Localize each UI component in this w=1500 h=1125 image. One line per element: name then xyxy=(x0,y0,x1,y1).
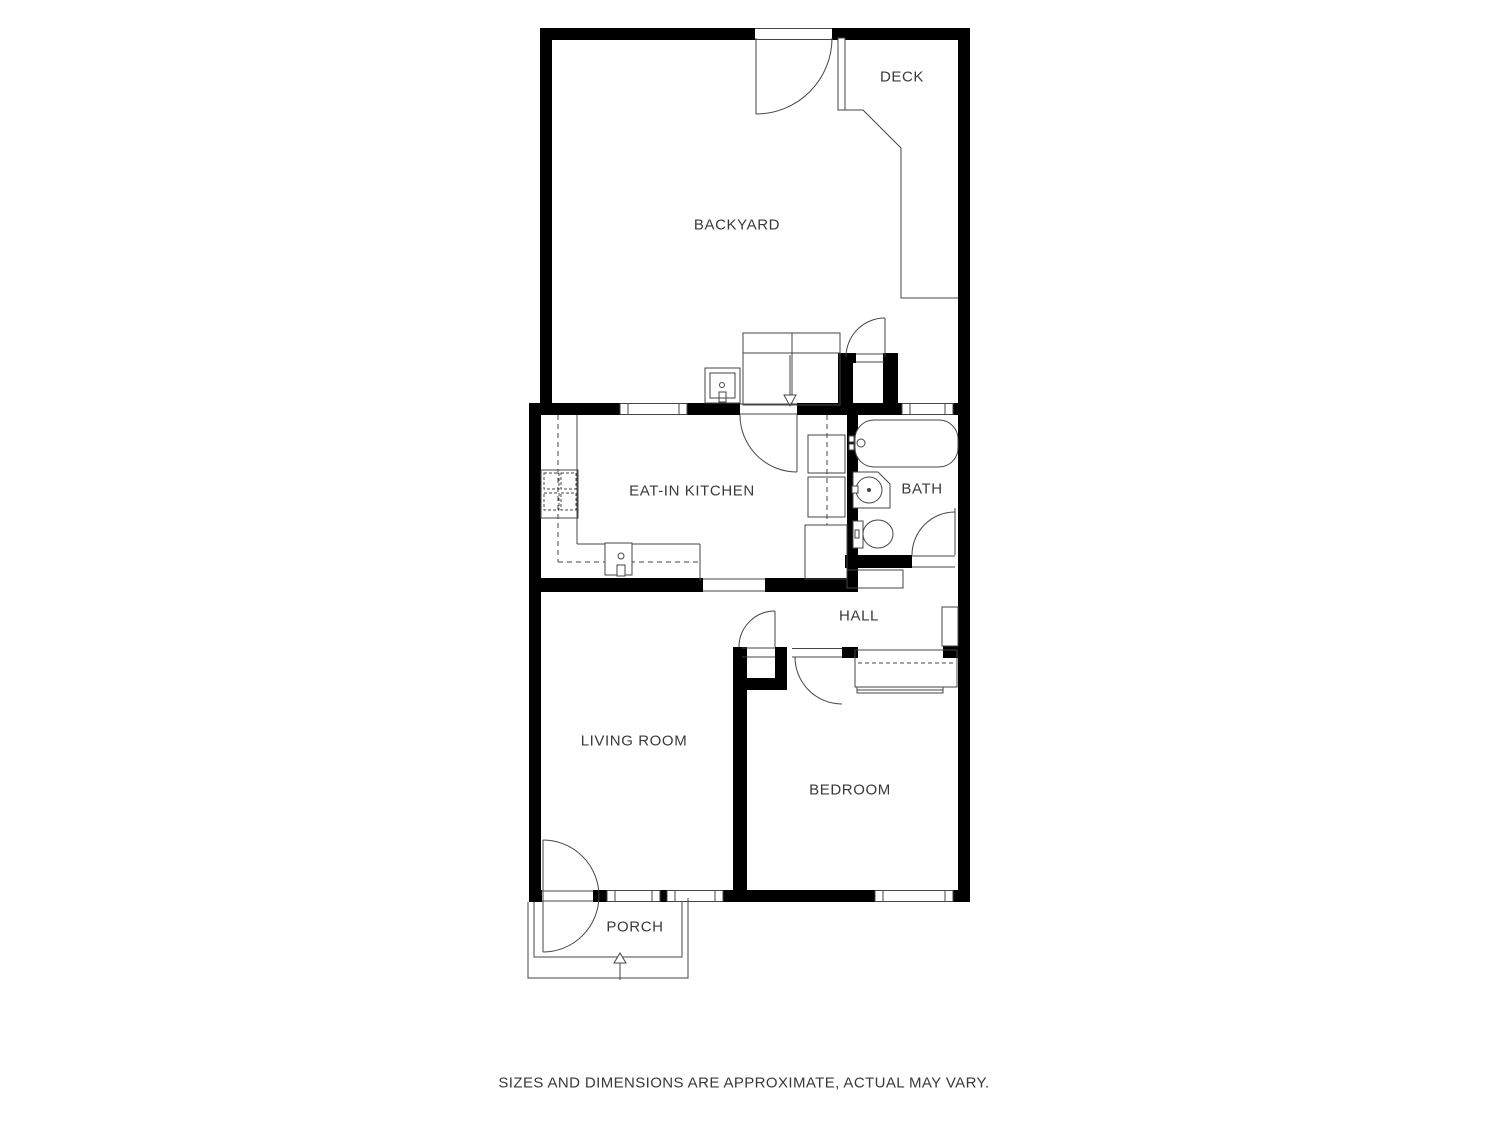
kitchen-back-door-swing-icon xyxy=(740,404,797,472)
room-label-bedroom: BEDROOM xyxy=(809,782,891,799)
bedroom-door-swing-icon xyxy=(792,649,842,705)
room-label-living-room: LIVING ROOM xyxy=(581,733,688,750)
kitchen-sink-icon xyxy=(605,543,632,576)
room-label-kitchen: EAT-IN KITCHEN xyxy=(629,483,755,500)
room-label-bath: BATH xyxy=(901,481,942,498)
toilet-icon xyxy=(853,520,893,548)
bedroom-closet-outline xyxy=(855,650,957,693)
utility-sink-icon xyxy=(705,368,740,403)
porch-outline xyxy=(528,898,688,978)
disclaimer-text: SIZES AND DIMENSIONS ARE APPROXIMATE, AC… xyxy=(498,1075,989,1092)
front-door-swing-icon xyxy=(542,840,599,952)
floorplan-canvas: DECK BACKYARD EAT-IN KITCHEN BATH HALL L… xyxy=(0,0,1500,1125)
sidelight-window-icon xyxy=(838,38,845,110)
room-label-deck: DECK xyxy=(880,69,924,86)
bathtub-icon xyxy=(849,420,958,467)
deck-door-swing-icon xyxy=(755,29,832,115)
stove-icon xyxy=(541,470,578,518)
floorplan-drawing xyxy=(0,0,1500,1125)
room-label-hall: HALL xyxy=(839,608,879,625)
refrigerator-icon xyxy=(805,435,847,579)
bath-sink-icon xyxy=(852,472,890,508)
bath-door-swing-icon xyxy=(912,508,955,567)
backyard-steps-icon xyxy=(743,333,840,405)
room-label-backyard: BACKYARD xyxy=(694,217,780,234)
room-label-porch: PORCH xyxy=(606,919,663,936)
hall-duct-outline xyxy=(942,607,958,646)
kitchen-opening-threshold xyxy=(703,579,765,591)
backyard-entry-arrow-icon xyxy=(784,355,796,406)
